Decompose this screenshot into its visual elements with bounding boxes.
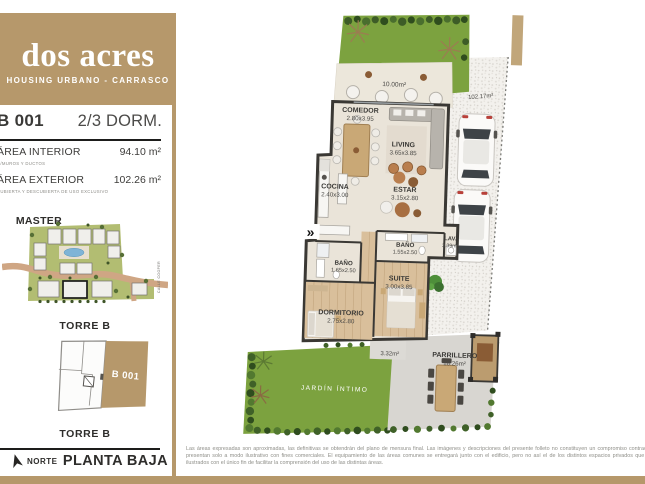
room-dims: 1.65x2.50 bbox=[331, 268, 356, 275]
room-label: BAÑO bbox=[396, 242, 415, 250]
room-dims: 2.40x3.00 bbox=[321, 191, 349, 199]
area-exterior-label: ÁREA EXTERIOR bbox=[0, 174, 84, 186]
room-dims: 1.55x2.50 bbox=[393, 249, 418, 256]
north-arrow-icon bbox=[10, 454, 23, 468]
room-dims: 2.80x3.95 bbox=[346, 115, 374, 123]
area-interior-note: C/MUROS Y DUCTOS bbox=[0, 161, 45, 166]
room-label: DORMITORIO bbox=[318, 309, 364, 317]
room-dims: 2.75x2.80 bbox=[327, 317, 355, 325]
torre-label-masterplan: TORRE B bbox=[0, 320, 170, 332]
sidebar-footer: NORTE PLANTA BAJA bbox=[10, 453, 168, 469]
area-interior-value: 94.10 m² bbox=[120, 146, 161, 158]
master-plan-map: CALLE COOPER bbox=[2, 221, 168, 321]
torre-label-diagram: TORRE B bbox=[0, 428, 170, 440]
brand-subtitle: HOUSING URBANO - CARRASCO bbox=[0, 76, 176, 85]
bottom-accent-bar bbox=[0, 476, 645, 484]
area-interior-row: ÁREA INTERIOR 94.10 m² bbox=[0, 146, 161, 158]
area-exterior-row: ÁREA EXTERIOR 102.26 m² bbox=[0, 174, 161, 186]
room-label: ESTAR bbox=[393, 186, 416, 194]
torre-b-highlight bbox=[63, 281, 87, 298]
car-icon bbox=[455, 113, 498, 186]
room-label: BAÑO bbox=[334, 260, 353, 268]
area-interior-label: ÁREA INTERIOR bbox=[0, 146, 81, 158]
area-exterior-value: 102.26 m² bbox=[114, 174, 161, 186]
room-label: PARRILLERO bbox=[432, 352, 478, 360]
entry-arrow-icon: » bbox=[306, 224, 314, 240]
room-label: LAV. bbox=[444, 236, 457, 242]
outdoor-table bbox=[435, 365, 456, 412]
street-label: CALLE COOPER bbox=[157, 261, 161, 293]
tower-diagram: B 001 bbox=[44, 334, 170, 428]
room-dims: 3.15x2.80 bbox=[391, 194, 419, 202]
area-exterior-note: CUBIERTA Y DESCUBIERTA DE USO EXCLUSIVO bbox=[0, 189, 108, 194]
room-label: COMEDOR bbox=[342, 107, 379, 115]
room-label: SUITE bbox=[389, 275, 410, 283]
terrace-area-label: 10.00m² bbox=[382, 81, 407, 89]
room-dims: 3.39m² bbox=[442, 243, 459, 250]
divider-line-bottom bbox=[0, 448, 160, 450]
unit-type: 2/3 DORM. bbox=[78, 112, 162, 131]
north-label: NORTE bbox=[27, 457, 58, 466]
brand-logo: dos acres bbox=[0, 39, 176, 73]
floor-plan: 102.17m² bbox=[176, 6, 645, 446]
room-label: LIVING bbox=[392, 141, 416, 149]
pool bbox=[64, 248, 84, 256]
unit-code: B 001 bbox=[0, 111, 44, 131]
brand-header: dos acres HOUSING URBANO - CARRASCO bbox=[0, 13, 176, 105]
room-dims: 3.00x3.85 bbox=[385, 283, 413, 291]
room-dims: 3.65x3.85 bbox=[389, 149, 417, 157]
unit-header: B 001 2/3 DORM. bbox=[0, 111, 162, 131]
floor-level-label: PLANTA BAJA bbox=[63, 453, 168, 469]
legal-disclaimer: Las áreas expresadas son aproximadas, la… bbox=[186, 446, 645, 468]
divider-line bbox=[0, 139, 161, 141]
tower-other-units bbox=[55, 336, 108, 414]
patio-area-label: 3.32m² bbox=[380, 351, 399, 358]
room-label: COCINA bbox=[321, 183, 349, 191]
boundary-wall bbox=[511, 15, 524, 65]
room-dims: 18.26m² bbox=[443, 360, 466, 368]
